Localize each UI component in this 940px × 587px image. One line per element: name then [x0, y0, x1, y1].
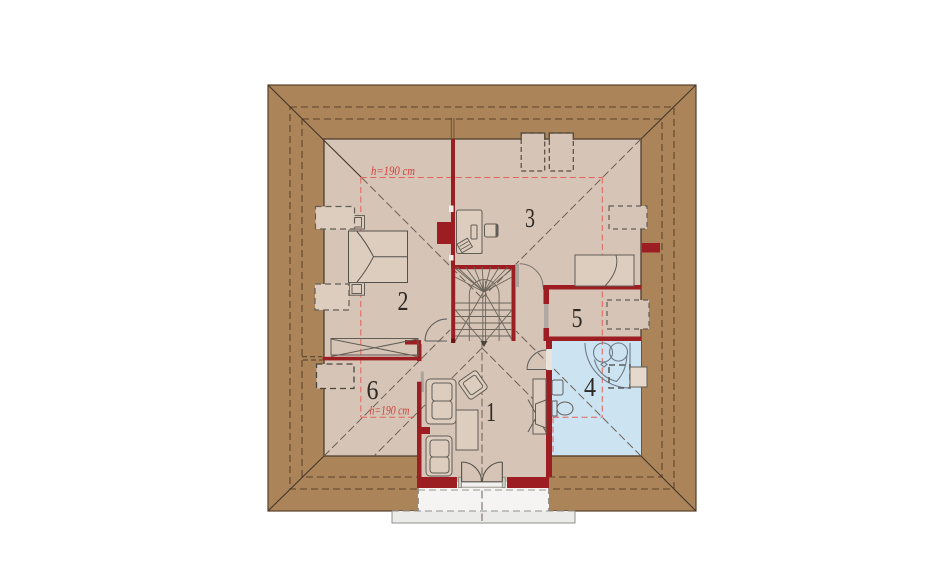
svg-text:h=190 cm: h=190 cm	[371, 163, 415, 178]
svg-text:3: 3	[525, 203, 535, 233]
svg-text:6: 6	[367, 375, 379, 405]
svg-text:5: 5	[572, 303, 583, 333]
svg-text:1: 1	[486, 397, 496, 427]
svg-text:4: 4	[584, 372, 596, 402]
svg-text:2: 2	[398, 286, 409, 316]
svg-text:h=190 cm: h=190 cm	[370, 404, 410, 418]
